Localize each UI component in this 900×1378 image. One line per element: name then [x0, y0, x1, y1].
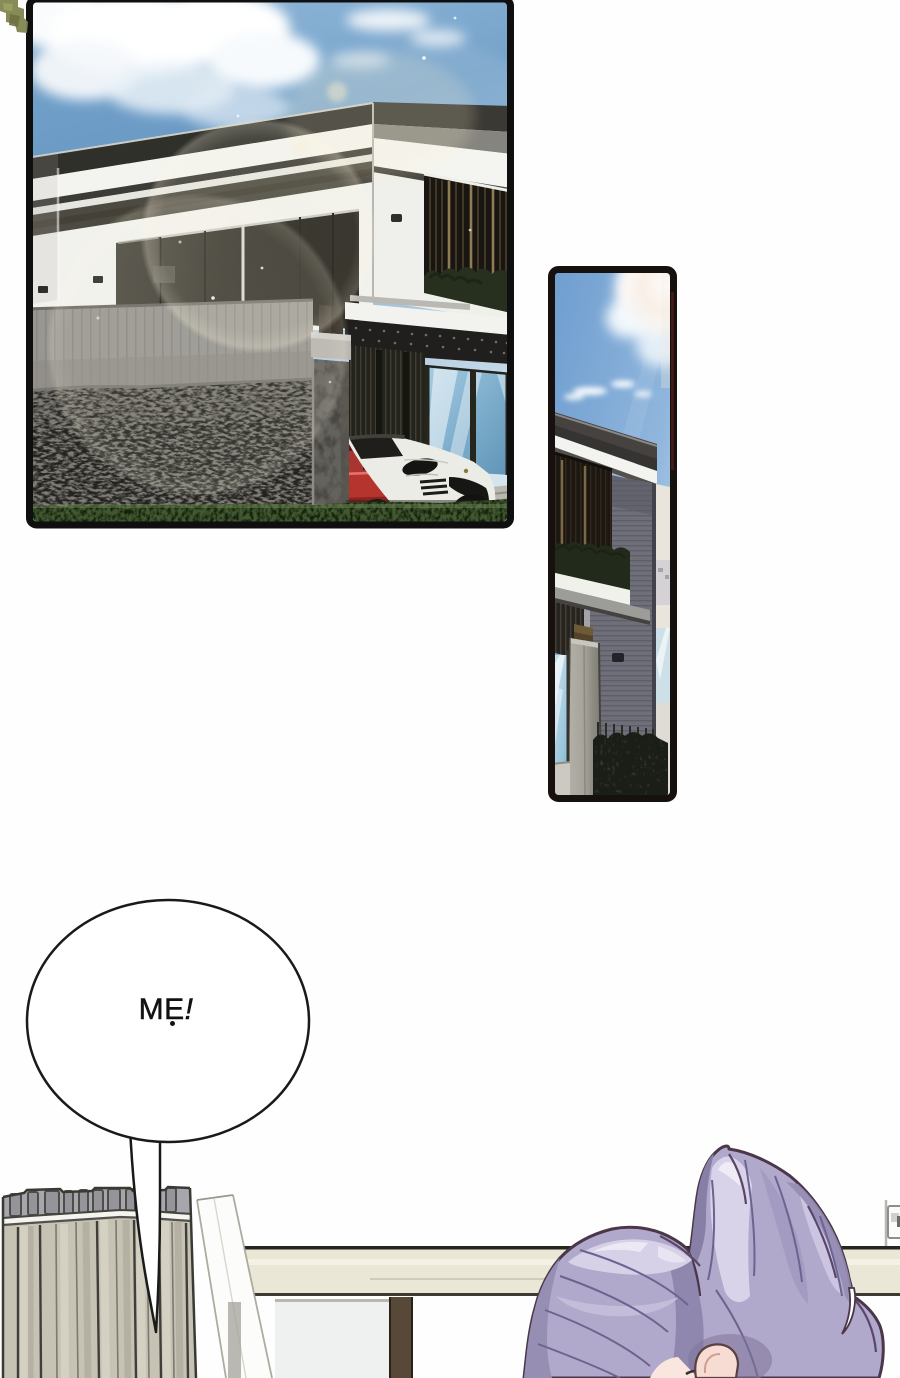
svg-text:ME!: ME! [139, 993, 194, 1026]
